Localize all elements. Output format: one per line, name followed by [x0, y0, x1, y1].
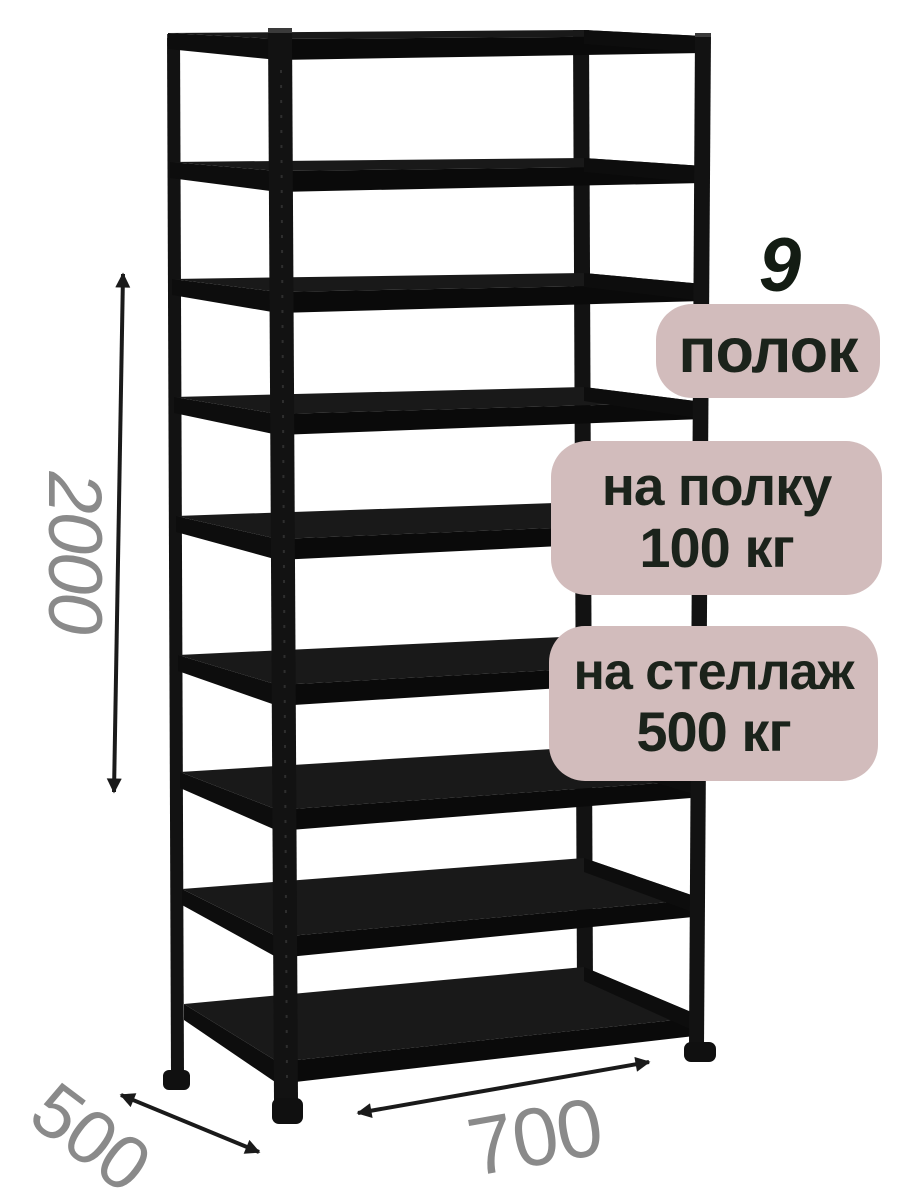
product-image: 2000 700 500 9 полок на полку 100 кг на …	[0, 0, 900, 1200]
shelf-count-number: 9	[731, 228, 829, 304]
post-back-left	[167, 34, 184, 1078]
foot-front-left	[272, 1098, 303, 1124]
shelf	[170, 158, 703, 192]
per-rack-load-value: 500 кг	[636, 701, 790, 764]
shelf-count-label: полок	[678, 316, 857, 387]
per-rack-load-text: на стеллаж	[574, 643, 854, 701]
shelf-count-badge: полок	[656, 304, 880, 398]
per-shelf-load-text: на полку	[602, 456, 832, 518]
shelf	[182, 858, 703, 958]
shelf	[174, 387, 703, 435]
per-shelf-load-badge: на полку 100 кг	[551, 441, 882, 595]
per-shelf-load-value: 100 кг	[639, 517, 793, 580]
shelf	[172, 273, 703, 313]
shelf	[168, 30, 703, 60]
rack-illustration	[0, 0, 900, 1200]
post-cap	[268, 28, 292, 33]
per-rack-load-badge: на стеллаж 500 кг	[549, 626, 878, 781]
post-cap	[695, 33, 711, 37]
foot-back-left	[163, 1070, 190, 1090]
height-dimension-label: 2000	[36, 426, 112, 678]
foot-front-right	[684, 1042, 716, 1062]
